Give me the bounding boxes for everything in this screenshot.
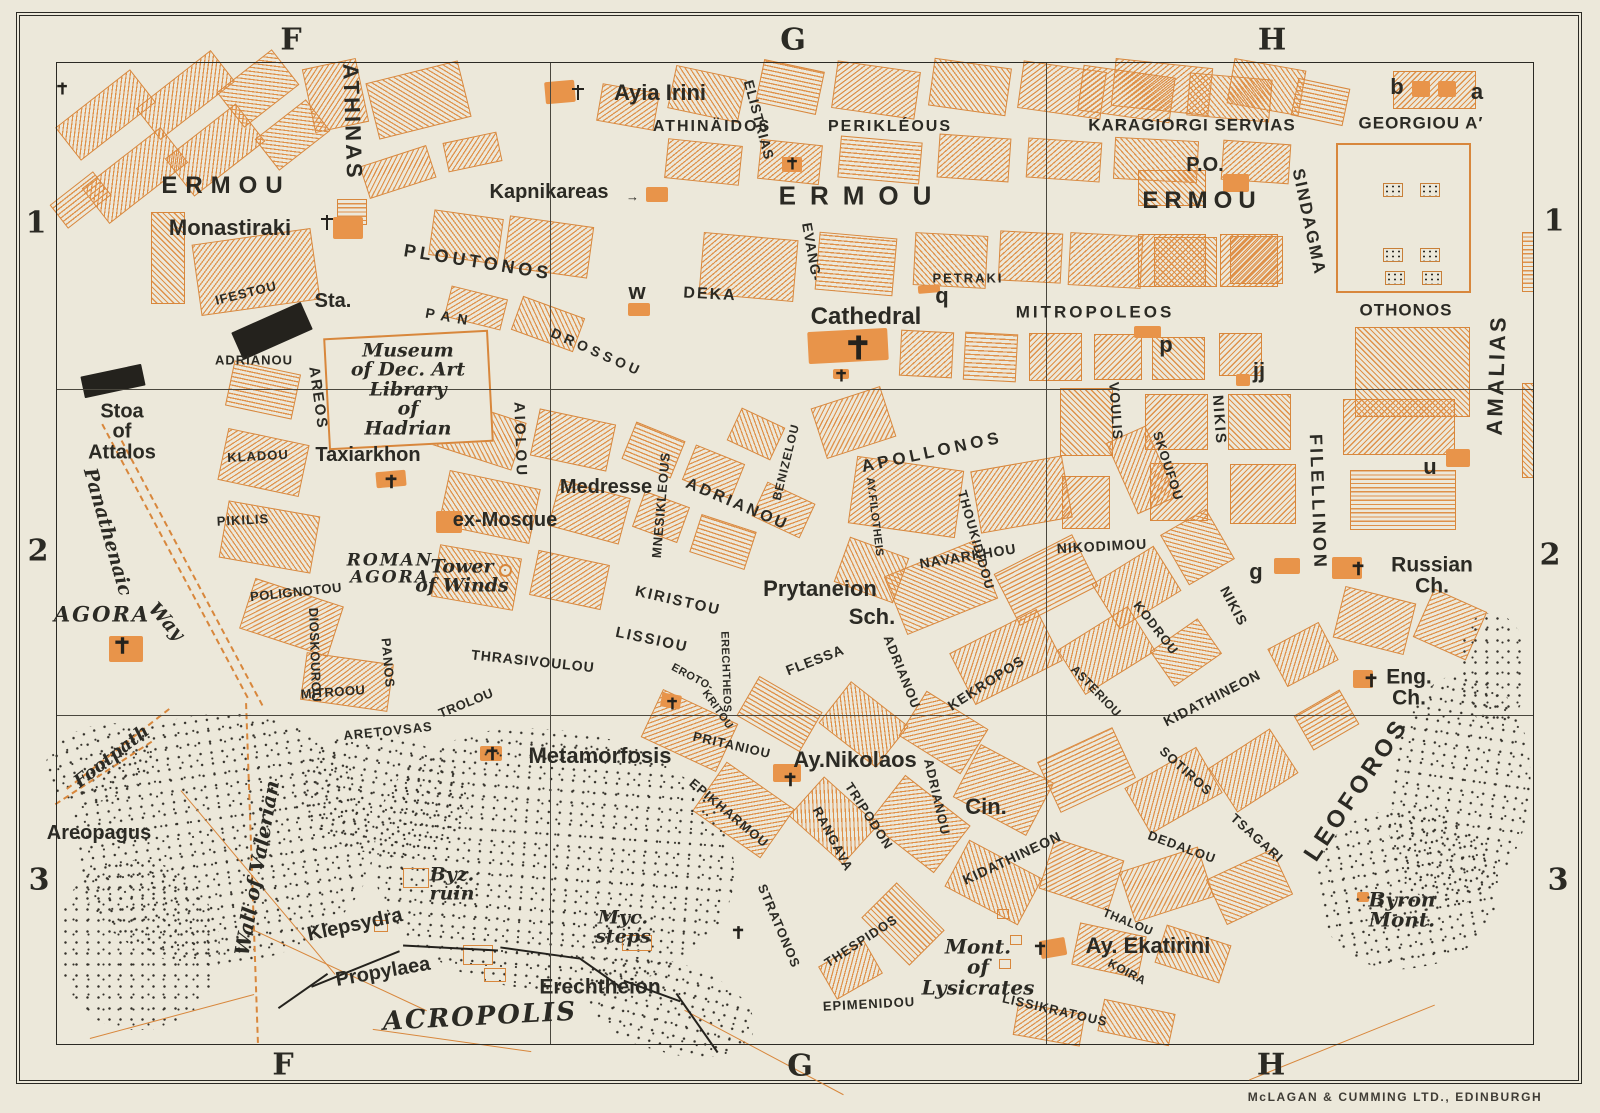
- row-number-2-right: 2: [1540, 541, 1561, 572]
- row-number-3-left: 3: [29, 866, 50, 897]
- row-number-1-left: 1: [26, 209, 47, 240]
- col-letter-f-top: F: [280, 26, 301, 57]
- col-letter-g-top: G: [780, 26, 806, 57]
- printer-caption: McLAGAN & CUMMING LTD., EDINBURGH: [1225, 1090, 1565, 1104]
- col-letter-f-bottom: F: [272, 1051, 293, 1082]
- row-number-1-right: 1: [1544, 207, 1565, 238]
- athens-map-sheet: →FGHFGH123123ERMOUATHINASMonastirakiSta.…: [0, 0, 1600, 1113]
- map-border: [56, 62, 1534, 1045]
- col-letter-h-top: H: [1258, 26, 1286, 57]
- row-number-3-right: 3: [1548, 866, 1569, 897]
- row-number-2-left: 2: [28, 537, 49, 568]
- col-letter-g-bottom: G: [787, 1052, 813, 1083]
- col-letter-h-bottom: H: [1257, 1051, 1285, 1082]
